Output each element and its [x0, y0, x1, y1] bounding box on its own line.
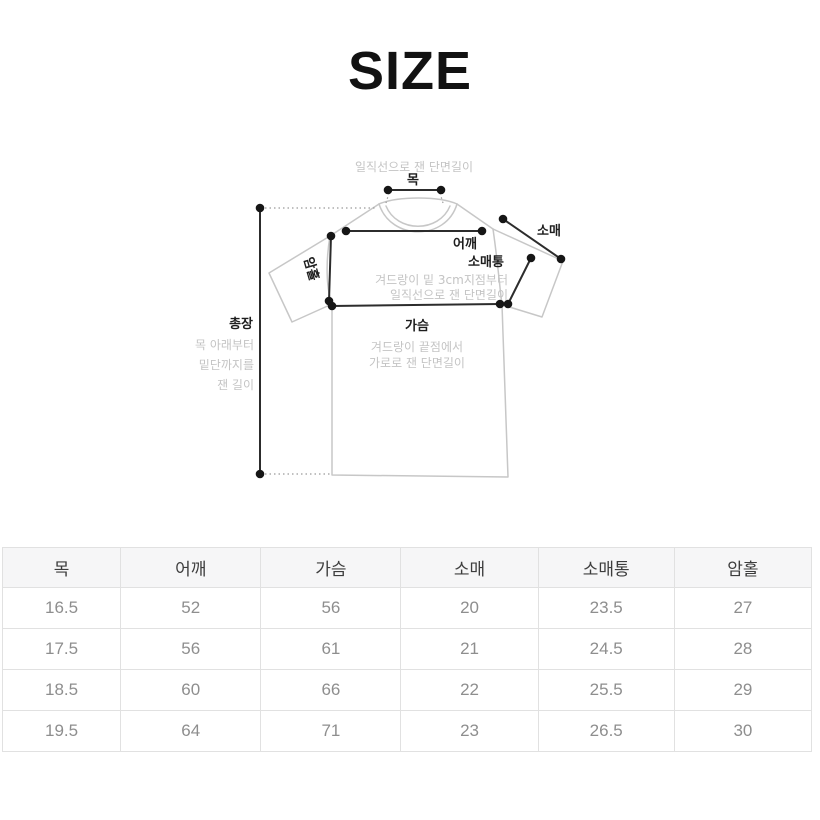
table-cell: 60	[121, 670, 261, 711]
table-cell: 21	[401, 629, 538, 670]
dot-marker	[327, 232, 336, 241]
chest-note-1: 겨드랑이 끝점에서	[371, 340, 463, 354]
table-cell: 71	[261, 711, 401, 752]
table-cell: 56	[261, 588, 401, 629]
sleeve-width-note-1: 겨드랑이 밑 3cm지점부터	[375, 273, 508, 287]
dot-marker	[325, 297, 334, 306]
table-cell: 19.5	[3, 711, 121, 752]
table-cell: 56	[121, 629, 261, 670]
table-header-chest: 가슴	[261, 548, 401, 588]
size-guide-page: SIZE	[0, 0, 820, 820]
neck-label: 목	[407, 173, 419, 188]
page-title: SIZE	[0, 40, 820, 102]
table-cell: 20	[401, 588, 538, 629]
total-length-note-3: 잰 길이	[217, 378, 254, 392]
table-cell: 61	[261, 629, 401, 670]
table-cell: 26.5	[538, 711, 674, 752]
table-row: 17.5 56 61 21 24.5 28	[3, 629, 812, 670]
collar-top-edge	[379, 198, 457, 204]
sleeve-label: 소매	[537, 224, 561, 239]
neck-note: 일직선으로 잰 단면길이	[355, 160, 473, 174]
dot-marker	[478, 227, 487, 236]
table-cell: 22	[401, 670, 538, 711]
chest-note-2: 가로로 잰 단면길이	[369, 356, 465, 370]
dot-marker	[437, 186, 446, 195]
table-cell: 64	[121, 711, 261, 752]
size-table: 목 어깨 가슴 소매 소매통 암홀 16.5 52 56 20 23.5 27 …	[2, 547, 812, 752]
tshirt-measurement-diagram: 목 어깨 소매 소매통 가슴 총장 암홀 일직선으로 잰 단면길이 겨드랑이 밑…	[180, 140, 640, 520]
sleeve-width-line	[508, 258, 531, 304]
chest-line	[332, 304, 500, 306]
table-cell: 24.5	[538, 629, 674, 670]
dot-marker	[256, 204, 265, 213]
table-cell: 66	[261, 670, 401, 711]
measurement-labels: 목 어깨 소매 소매통 가슴 총장 암홀	[229, 173, 561, 334]
dot-marker	[384, 186, 393, 195]
table-row: 18.5 60 66 22 25.5 29	[3, 670, 812, 711]
collar-inner-edge	[386, 206, 450, 226]
table-cell: 27	[674, 588, 811, 629]
total-length-note-1: 목 아래부터	[195, 338, 254, 352]
table-cell: 16.5	[3, 588, 121, 629]
table-header-shoulder: 어깨	[121, 548, 261, 588]
dot-marker	[256, 470, 265, 479]
sleeve-width-note-2: 일직선으로 잰 단면길이	[390, 288, 508, 302]
table-header-sleeve-width: 소매통	[538, 548, 674, 588]
table-cell: 29	[674, 670, 811, 711]
table-row: 16.5 52 56 20 23.5 27	[3, 588, 812, 629]
total-length-label: 총장	[229, 316, 253, 332]
dot-marker	[342, 227, 351, 236]
sleeve-width-label: 소매통	[468, 255, 504, 270]
dot-marker	[527, 254, 536, 263]
shoulder-label: 어깨	[453, 236, 477, 252]
table-cell: 30	[674, 711, 811, 752]
size-table-header-row: 목 어깨 가슴 소매 소매통 암홀	[3, 548, 812, 588]
neck-right-guide	[440, 193, 443, 203]
table-header-armhole: 암홀	[674, 548, 811, 588]
total-length-note-2: 밑단까지를	[199, 358, 254, 372]
measurement-notes: 일직선으로 잰 단면길이 겨드랑이 밑 3cm지점부터 일직선으로 잰 단면길이…	[195, 160, 508, 392]
dot-marker	[499, 215, 508, 224]
table-cell: 28	[674, 629, 811, 670]
table-cell: 23	[401, 711, 538, 752]
left-sleeve-outline	[269, 236, 332, 322]
table-cell: 25.5	[538, 670, 674, 711]
chest-label: 가슴	[405, 319, 429, 334]
armhole-label: 암홀	[300, 255, 322, 282]
table-cell: 52	[121, 588, 261, 629]
collar-outer-edge	[379, 204, 457, 232]
table-cell: 18.5	[3, 670, 121, 711]
dot-marker	[557, 255, 566, 264]
tshirt-outline	[269, 198, 563, 477]
table-cell: 17.5	[3, 629, 121, 670]
table-header-sleeve: 소매	[401, 548, 538, 588]
table-cell: 23.5	[538, 588, 674, 629]
table-row: 19.5 64 71 23 26.5 30	[3, 711, 812, 752]
right-shoulder-edge	[457, 204, 493, 229]
table-header-neck: 목	[3, 548, 121, 588]
